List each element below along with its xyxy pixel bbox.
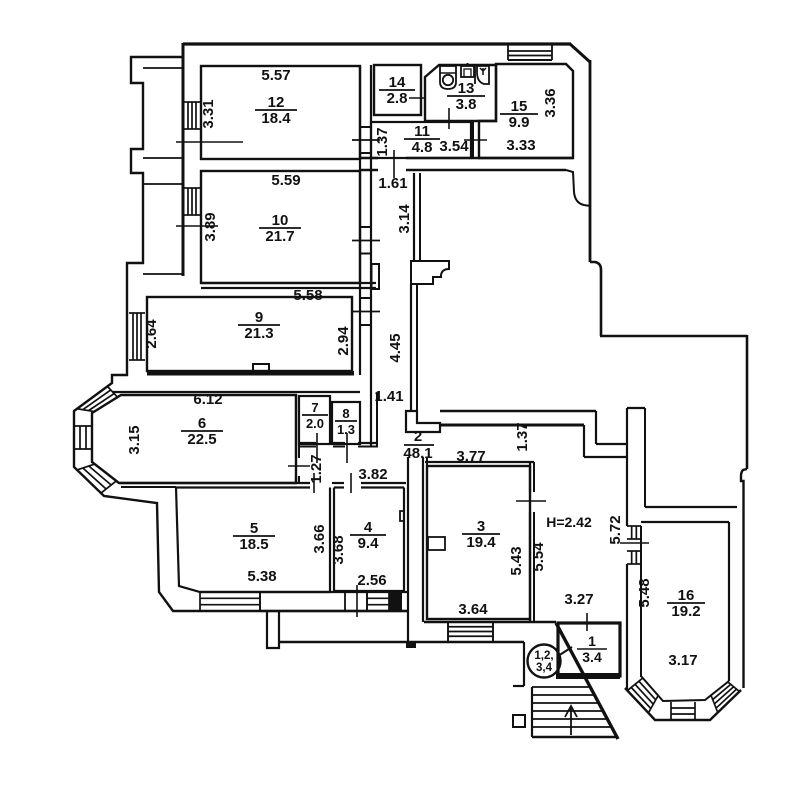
svg-text:2: 2 [414, 428, 422, 445]
svg-text:3.31: 3.31 [200, 99, 217, 128]
svg-text:4.45: 4.45 [387, 333, 404, 362]
svg-text:3.64: 3.64 [458, 601, 488, 618]
svg-text:1,2,: 1,2, [534, 650, 553, 662]
svg-text:3,4: 3,4 [536, 662, 553, 674]
svg-text:3.89: 3.89 [202, 212, 219, 241]
svg-text:2.0: 2.0 [306, 416, 324, 431]
svg-text:18.5: 18.5 [239, 536, 268, 553]
svg-text:5.38: 5.38 [247, 568, 276, 585]
svg-text:2.64: 2.64 [143, 319, 160, 349]
svg-text:6.12: 6.12 [193, 391, 222, 408]
svg-text:1.41: 1.41 [374, 388, 403, 405]
svg-text:22.5: 22.5 [187, 431, 216, 448]
svg-text:3.15: 3.15 [126, 425, 143, 454]
svg-text:11: 11 [414, 123, 430, 140]
svg-text:1.3: 1.3 [337, 422, 355, 437]
svg-text:5.72: 5.72 [607, 515, 624, 544]
svg-text:15: 15 [511, 98, 528, 115]
svg-text:2.8: 2.8 [387, 90, 408, 107]
svg-text:6: 6 [198, 415, 206, 432]
svg-text:2.94: 2.94 [335, 326, 352, 356]
svg-text:1: 1 [588, 633, 596, 649]
svg-text:3.82: 3.82 [358, 466, 387, 483]
svg-text:13: 13 [458, 80, 475, 97]
svg-text:4.8: 4.8 [412, 139, 433, 156]
svg-text:4: 4 [364, 519, 373, 536]
svg-text:1.61: 1.61 [378, 175, 407, 192]
svg-text:8: 8 [342, 406, 349, 421]
svg-text:9: 9 [255, 309, 263, 326]
svg-text:1.37: 1.37 [514, 422, 531, 451]
svg-text:5.59: 5.59 [271, 172, 300, 189]
svg-text:H=2.42: H=2.42 [546, 514, 592, 530]
svg-text:3.36: 3.36 [542, 88, 559, 117]
svg-text:7: 7 [311, 400, 318, 415]
svg-text:14: 14 [389, 74, 406, 91]
svg-text:3.14: 3.14 [396, 204, 413, 234]
svg-text:3.68: 3.68 [330, 535, 347, 564]
svg-text:19.4: 19.4 [466, 534, 496, 551]
svg-text:3.54: 3.54 [439, 138, 469, 155]
svg-text:5.48: 5.48 [636, 578, 653, 607]
svg-text:21.7: 21.7 [265, 228, 294, 245]
svg-text:19.2: 19.2 [671, 603, 700, 620]
svg-text:5.57: 5.57 [261, 67, 290, 84]
svg-text:5.43: 5.43 [508, 546, 525, 575]
svg-text:3.4: 3.4 [582, 649, 602, 665]
svg-text:9.4: 9.4 [358, 535, 380, 552]
svg-text:18.4: 18.4 [261, 110, 291, 127]
svg-text:1.27: 1.27 [308, 454, 325, 483]
svg-text:16: 16 [678, 587, 695, 604]
svg-text:3.8: 3.8 [456, 96, 477, 113]
svg-text:21.3: 21.3 [244, 325, 273, 342]
svg-text:5.58: 5.58 [293, 287, 322, 304]
svg-text:3.33: 3.33 [506, 137, 535, 154]
svg-text:1.37: 1.37 [374, 127, 391, 156]
svg-text:5: 5 [250, 520, 258, 537]
svg-text:2.56: 2.56 [357, 572, 386, 589]
svg-text:9.9: 9.9 [509, 114, 530, 131]
svg-text:12: 12 [268, 94, 285, 111]
svg-text:3: 3 [477, 518, 485, 535]
svg-text:10: 10 [272, 212, 289, 229]
svg-text:3.17: 3.17 [668, 652, 697, 669]
svg-text:3.27: 3.27 [564, 591, 593, 608]
svg-text:3.66: 3.66 [311, 524, 328, 553]
svg-text:5.54: 5.54 [530, 542, 547, 572]
